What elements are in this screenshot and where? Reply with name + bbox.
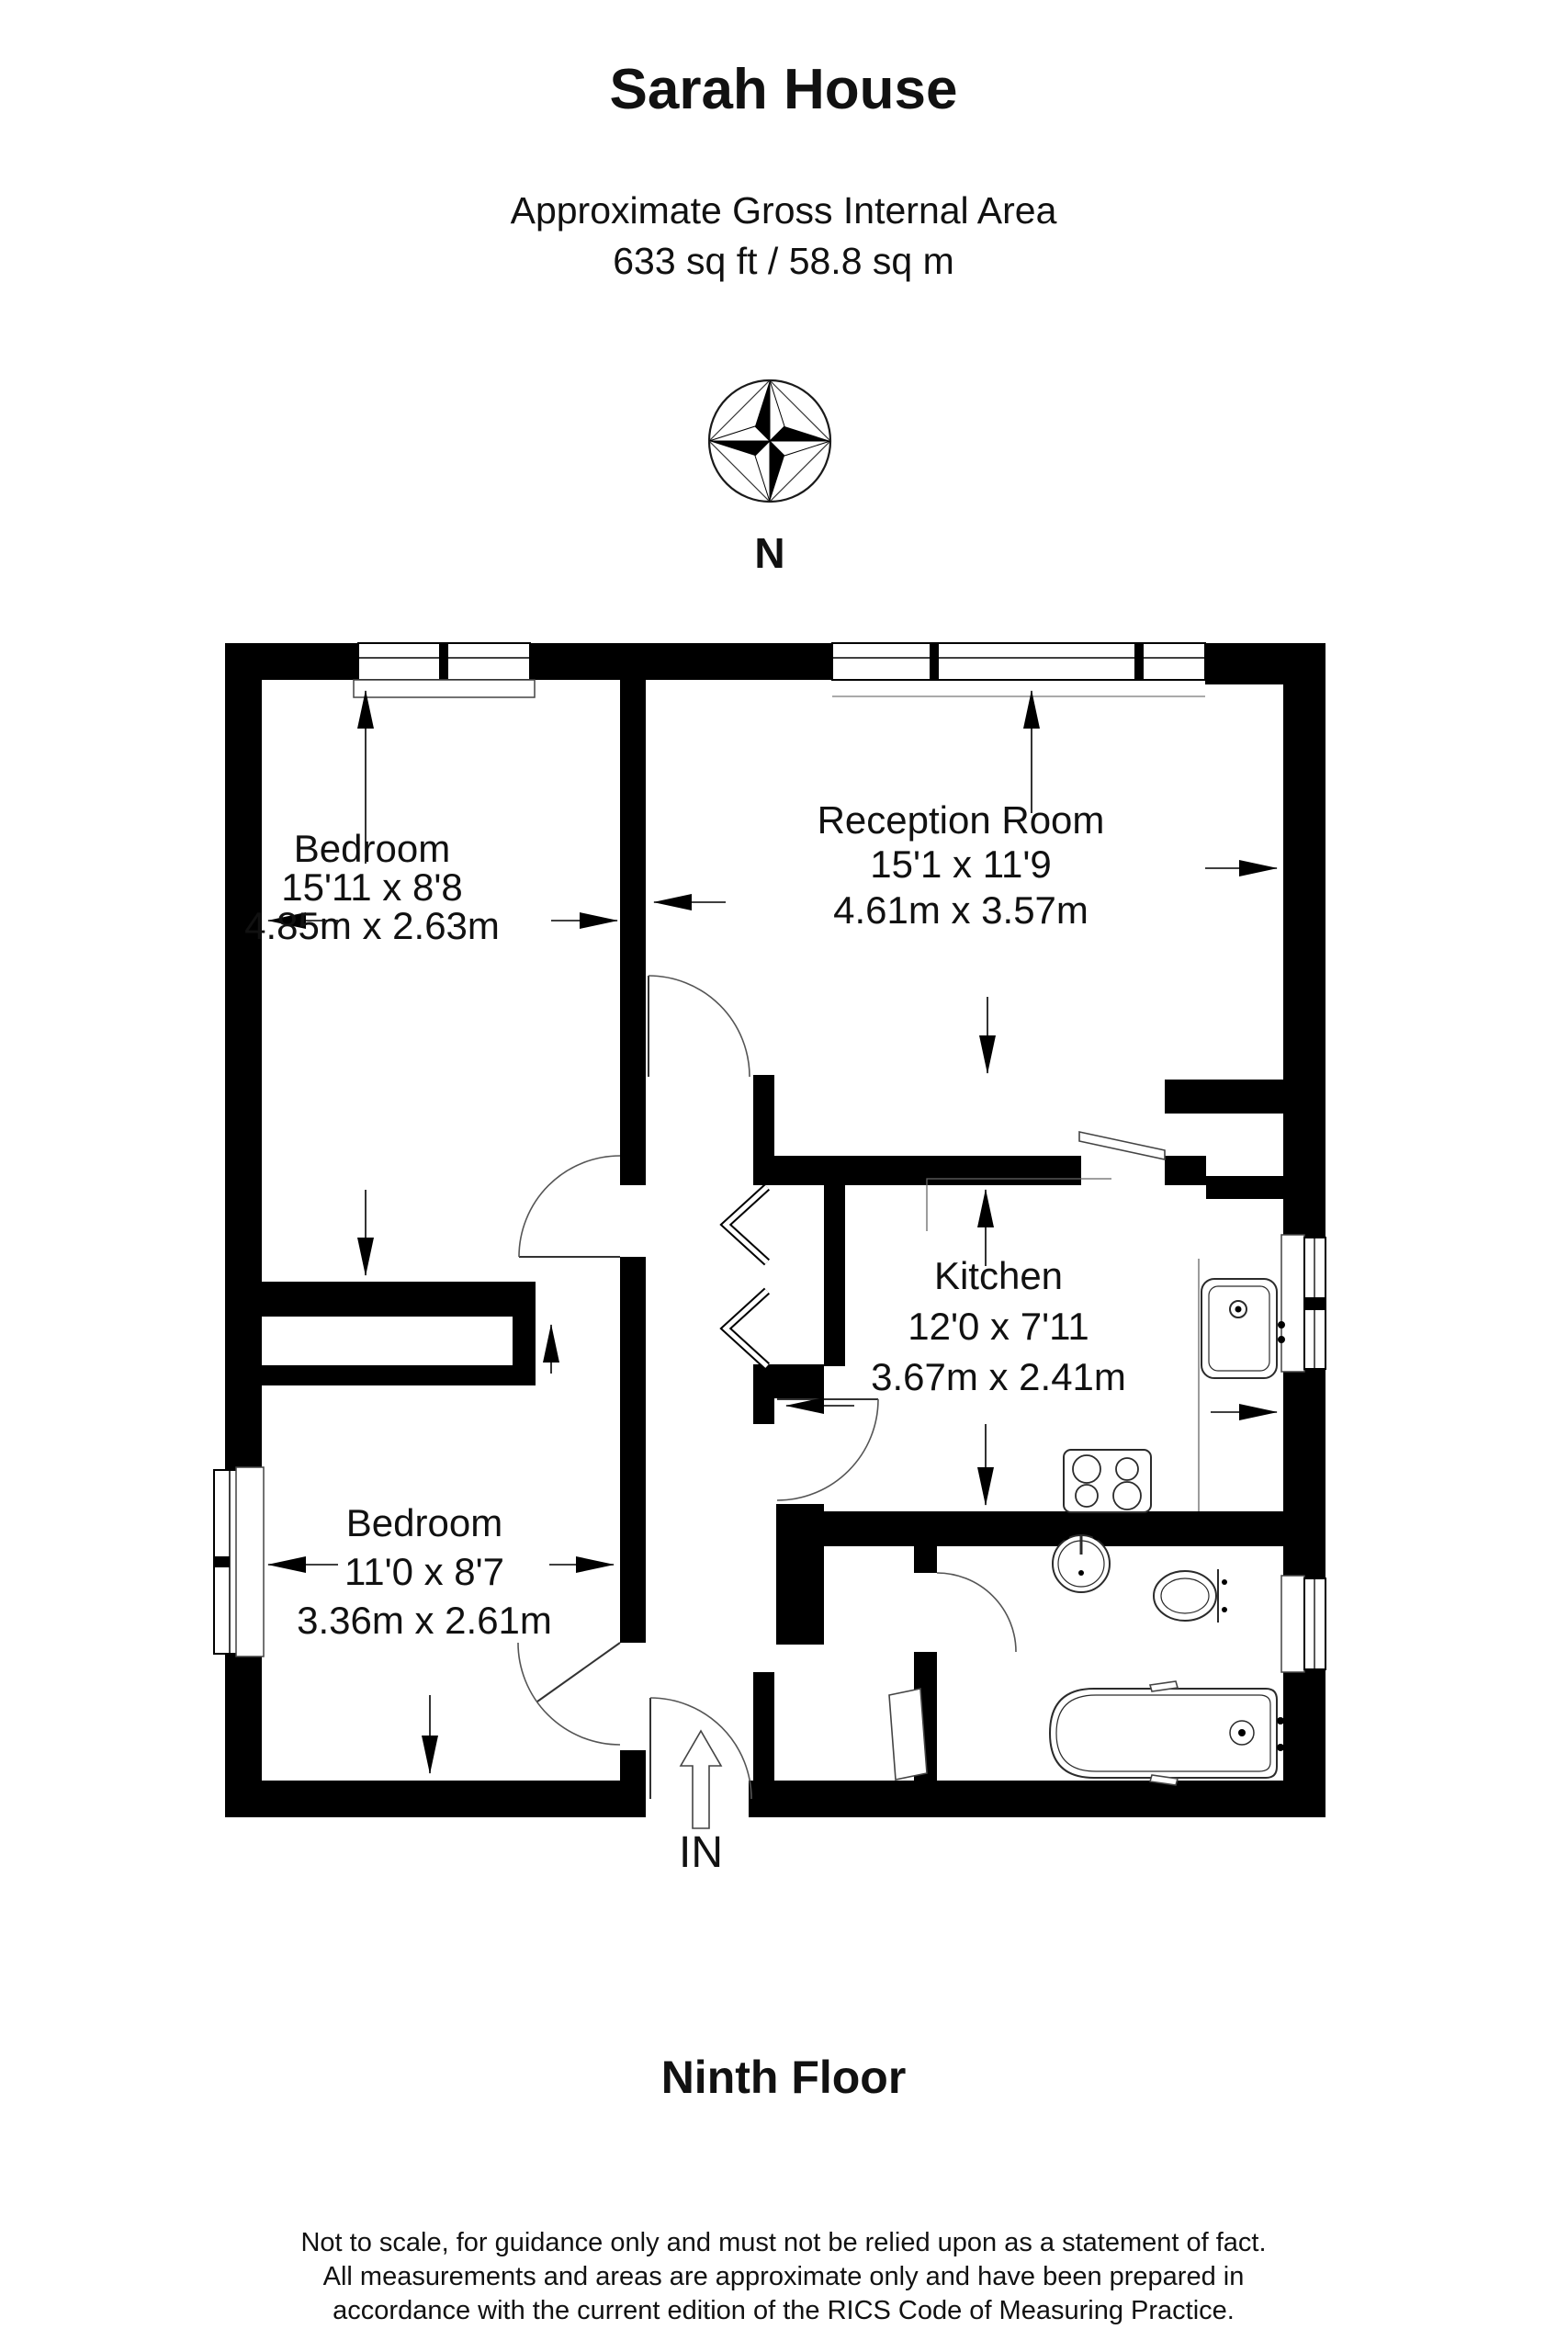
room-label-kitchen: Kitchen 12'0 x 7'11 3.67m x 2.41m xyxy=(871,1254,1126,1398)
door-reception-kitchen xyxy=(1079,1132,1165,1159)
bedroom2-size-metric: 3.36m x 2.61m xyxy=(297,1599,552,1642)
kitchen-sink xyxy=(1201,1279,1285,1378)
bathtub-icon xyxy=(1050,1681,1284,1785)
page-title: Sarah House xyxy=(609,58,957,121)
area-label: Approximate Gross Internal Area xyxy=(511,189,1057,232)
entrance-label: IN xyxy=(679,1828,723,1877)
reception-size-imperial: 15'1 x 11'9 xyxy=(870,842,1051,886)
door-bedroom1 xyxy=(519,1156,620,1257)
door-kitchen xyxy=(777,1399,878,1500)
compass-north-label: N xyxy=(754,529,784,577)
closet-bifold-doors xyxy=(726,1187,767,1366)
window-reception-top xyxy=(832,643,1205,696)
bedroom1-size-imperial: 15'11 x 8'8 xyxy=(281,865,462,909)
reception-size-metric: 4.61m x 3.57m xyxy=(833,888,1089,932)
room-label-reception: Reception Room 15'1 x 11'9 4.61m x 3.57m xyxy=(818,798,1105,932)
window-bedroom1-top xyxy=(354,643,535,697)
window-bathroom-right xyxy=(1281,1576,1325,1672)
floor-label: Ninth Floor xyxy=(661,2052,907,2103)
entrance-arrow-icon xyxy=(681,1731,721,1828)
bedroom2-size-imperial: 11'0 x 8'7 xyxy=(344,1550,504,1593)
area-value: 633 sq ft / 58.8 sq m xyxy=(613,240,953,282)
door-reception xyxy=(649,976,750,1077)
kitchen-name: Kitchen xyxy=(934,1254,1063,1297)
disclaimer-line-3: accordance with the current edition of t… xyxy=(333,2296,1235,2325)
window-bedroom2-left xyxy=(214,1467,264,1657)
room-label-bedroom1: Bedroom 15'11 x 8'8 4.85m x 2.63m xyxy=(244,827,500,947)
compass-icon xyxy=(709,380,830,502)
disclaimer-line-1: Not to scale, for guidance only and must… xyxy=(300,2228,1266,2257)
toilet-icon xyxy=(1154,1569,1227,1623)
hob-icon xyxy=(1064,1450,1151,1512)
disclaimer-line-2: All measurements and areas are approxima… xyxy=(323,2262,1245,2291)
kitchen-size-metric: 3.67m x 2.41m xyxy=(871,1355,1126,1398)
door-bathroom xyxy=(889,1573,1016,1780)
kitchen-size-imperial: 12'0 x 7'11 xyxy=(908,1305,1089,1348)
bedroom2-name: Bedroom xyxy=(346,1501,502,1544)
window-kitchen-right xyxy=(1281,1235,1325,1372)
bedroom1-size-metric: 4.85m x 2.63m xyxy=(244,904,500,947)
reception-name: Reception Room xyxy=(818,798,1105,842)
floor-plan-svg: Sarah House Approximate Gross Internal A… xyxy=(0,0,1568,2352)
door-bedroom2 xyxy=(518,1643,620,1745)
room-label-bedroom2: Bedroom 11'0 x 8'7 3.36m x 2.61m xyxy=(297,1501,552,1642)
floorplan-page: Sarah House Approximate Gross Internal A… xyxy=(0,0,1568,2352)
bedroom1-name: Bedroom xyxy=(294,827,450,870)
